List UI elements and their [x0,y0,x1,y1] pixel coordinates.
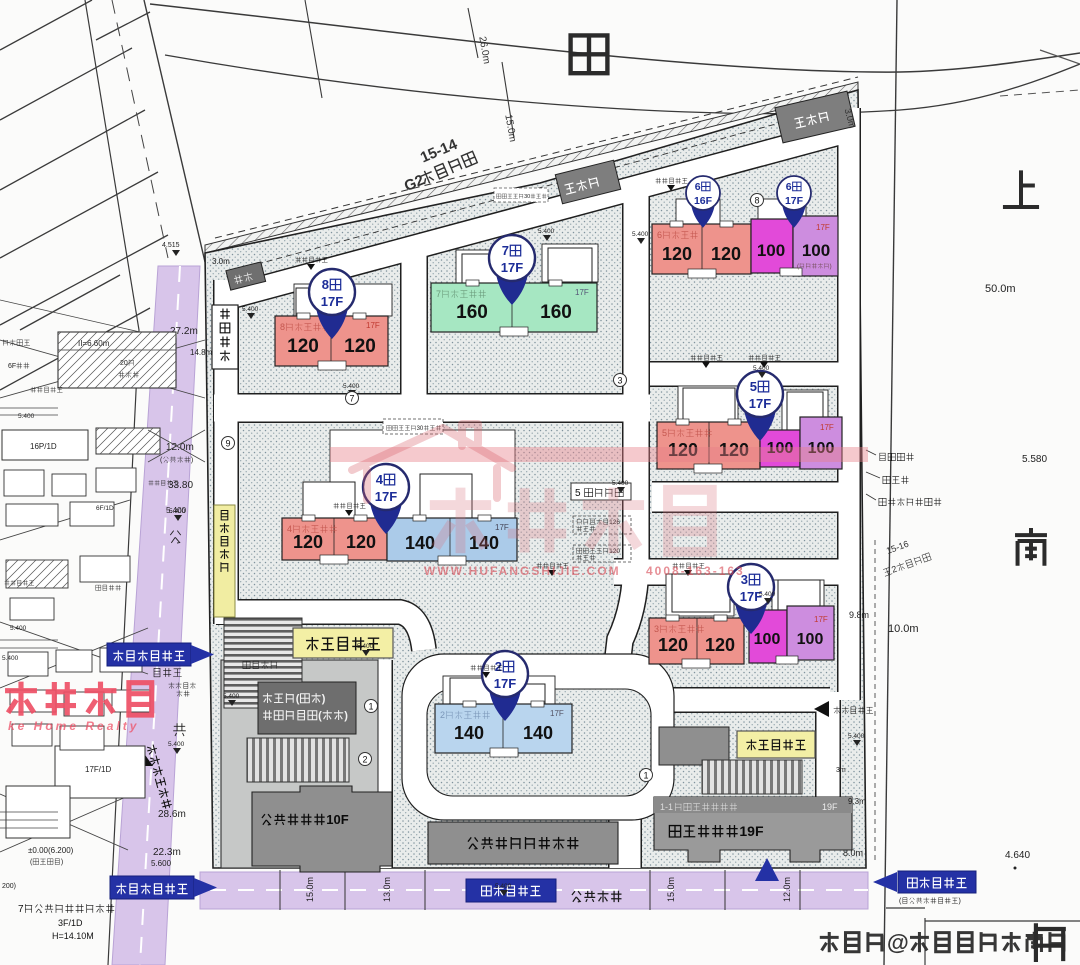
svg-text:9: 9 [225,439,230,449]
svg-text:5.400: 5.400 [612,480,629,487]
svg-text:22.3m: 22.3m [153,847,181,858]
svg-text:7: 7 [502,243,509,258]
svg-text:5.600: 5.600 [151,859,172,868]
svg-text:(: ( [318,710,322,722]
svg-text:5.580: 5.580 [1022,454,1047,465]
svg-text:3F/1D: 3F/1D [58,918,83,928]
svg-text:33.80: 33.80 [168,480,193,491]
svg-text:5.400: 5.400 [632,231,649,238]
svg-text:9.3m: 9.3m [848,797,866,806]
svg-text:): ) [830,264,832,270]
svg-text:5.400: 5.400 [538,228,555,235]
svg-text:120: 120 [344,336,376,357]
svg-text:5: 5 [662,428,667,438]
svg-text:3m: 3m [836,767,846,774]
svg-text:17F: 17F [550,709,564,718]
svg-text:6: 6 [695,181,701,193]
svg-text:30: 30 [417,426,424,432]
svg-text:5.400: 5.400 [10,625,27,632]
svg-text:1: 1 [368,702,373,712]
svg-text:8: 8 [754,196,759,206]
svg-text:4.640: 4.640 [1005,850,1030,861]
svg-text:5.400: 5.400 [848,733,865,740]
svg-text:9.8m: 9.8m [849,610,869,620]
svg-text:120: 120 [293,532,323,552]
svg-text:WWW.HUFANGSHIJIE.COM: WWW.HUFANGSHIJIE.COM [424,564,621,578]
svg-text:140: 140 [454,723,484,743]
svg-text:15.0m: 15.0m [305,877,315,902]
svg-text:5.400: 5.400 [357,643,374,650]
svg-text:200): 200) [2,883,16,890]
svg-text:7: 7 [18,904,24,915]
svg-text:14.8m: 14.8m [190,348,213,357]
svg-text:120: 120 [658,635,688,655]
svg-text:5.400: 5.400 [495,883,512,890]
svg-text:5.400: 5.400 [753,365,770,372]
svg-text:8: 8 [322,277,329,292]
svg-text:17F: 17F [494,676,516,691]
svg-text:160: 160 [540,302,572,323]
svg-text:): ) [61,859,63,866]
svg-text:5.400: 5.400 [759,591,776,598]
svg-text:5: 5 [750,379,757,394]
svg-text:4: 4 [287,524,292,534]
svg-text:17F: 17F [814,615,828,624]
svg-text:15.0m: 15.0m [666,877,676,902]
svg-text:5.400: 5.400 [242,306,259,313]
svg-text:120: 120 [346,532,376,552]
svg-text:5.400: 5.400 [169,508,186,515]
svg-text:17F/1D: 17F/1D [85,765,111,774]
svg-text:17F: 17F [321,294,343,309]
svg-text:6F: 6F [8,363,16,370]
svg-text:3: 3 [654,624,659,634]
svg-text:2: 2 [362,755,367,765]
svg-text:100: 100 [757,241,785,260]
svg-text:H=14.10M: H=14.10M [52,931,94,941]
svg-text:16P/1D: 16P/1D [30,442,57,451]
svg-text:3.0m: 3.0m [212,257,230,266]
svg-text:100: 100 [797,631,824,648]
svg-text:28.6m: 28.6m [158,809,186,820]
svg-text:4.515: 4.515 [162,242,180,249]
svg-text:6F/1D: 6F/1D [96,505,114,512]
svg-text:17F: 17F [820,423,834,432]
svg-text:120: 120 [287,336,319,357]
svg-text:17F: 17F [816,223,830,232]
svg-text:ke Home Realty: ke Home Realty [8,719,139,733]
svg-text:120: 120 [705,635,735,655]
svg-text:5.400: 5.400 [18,413,35,420]
svg-text:17F: 17F [366,321,380,330]
svg-text:3: 3 [617,376,622,386]
svg-text:120: 120 [662,244,692,264]
svg-text:5: 5 [575,488,581,499]
svg-text:13.0m: 13.0m [382,877,392,902]
svg-text:100: 100 [754,631,781,648]
svg-text:17F: 17F [501,260,523,275]
svg-text:17F: 17F [749,396,771,411]
svg-text:140: 140 [523,723,553,743]
svg-text:140: 140 [405,533,435,553]
svg-text:@: @ [887,930,909,955]
svg-text:160: 160 [456,302,488,323]
svg-text:): ) [191,457,193,464]
svg-text:19F: 19F [739,823,764,839]
svg-text:20: 20 [120,360,128,367]
svg-text:10.0m: 10.0m [888,623,919,635]
svg-text:4008-163-163: 4008-163-163 [646,564,745,578]
svg-text:2: 2 [440,710,445,720]
svg-text:6: 6 [657,230,662,240]
svg-text:17F: 17F [575,288,589,297]
svg-text:5.400: 5.400 [343,383,360,390]
svg-text:30: 30 [524,194,530,200]
svg-text:2: 2 [495,659,502,674]
svg-text:): ) [344,710,348,722]
svg-text:4: 4 [376,472,384,487]
svg-text:5.400: 5.400 [223,693,240,700]
svg-text:(: ( [797,264,799,270]
svg-text:1-1: 1-1 [660,802,673,812]
svg-text:17F: 17F [495,523,509,532]
svg-text:8.0m: 8.0m [843,848,863,858]
svg-text:120: 120 [711,244,741,264]
svg-text:1: 1 [643,771,648,781]
svg-text:5.400: 5.400 [168,741,185,748]
svg-text:19F: 19F [822,802,838,812]
svg-text:7: 7 [436,289,441,299]
svg-text:6: 6 [786,181,792,193]
svg-text:5.400: 5.400 [2,655,19,662]
svg-text:): ) [959,898,961,905]
svg-text:16F: 16F [694,195,713,207]
svg-text:100: 100 [802,241,830,260]
svg-text:7: 7 [349,394,354,404]
svg-text:17F: 17F [375,489,397,504]
svg-text:): ) [322,693,326,705]
svg-text:±0.00(6.200): ±0.00(6.200) [28,846,74,855]
svg-text:10F: 10F [326,812,348,827]
svg-text:17F: 17F [785,195,804,207]
svg-text:8: 8 [280,322,285,332]
svg-text:50.0m: 50.0m [985,283,1016,295]
svg-text:(: ( [296,693,300,705]
svg-text:12.0m: 12.0m [782,877,792,902]
